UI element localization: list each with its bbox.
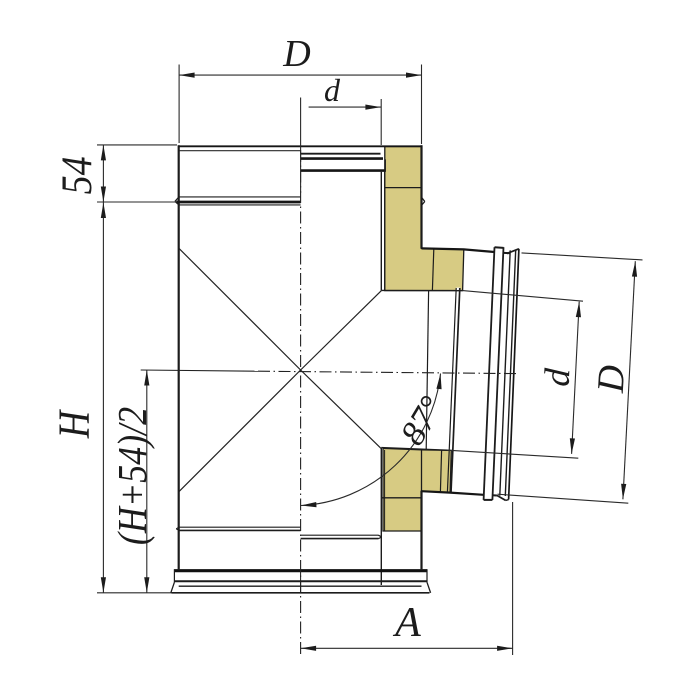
svg-text:H: H	[49, 409, 98, 439]
svg-text:D: D	[590, 364, 633, 395]
svg-text:(H+54)/2: (H+54)/2	[110, 407, 156, 545]
svg-text:d: d	[324, 72, 341, 108]
svg-text:D: D	[282, 33, 310, 75]
svg-text:d: d	[537, 366, 578, 387]
svg-text:A: A	[392, 600, 421, 646]
svg-text:54: 54	[53, 156, 101, 194]
